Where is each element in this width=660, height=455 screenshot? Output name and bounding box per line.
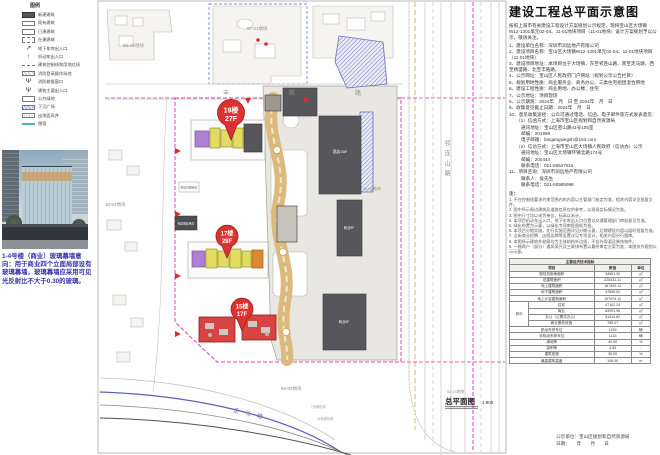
legend-item: Ψ建筑主要出入口 xyxy=(22,88,96,94)
sunken-plaza-swatch xyxy=(22,105,35,111)
legend-item: 既有建筑 xyxy=(22,20,96,26)
legend-label: 既有建筑 xyxy=(38,20,55,26)
red-line-swatch xyxy=(22,65,35,66)
note-line: 8. 本图所示建筑外轮廓均为主体结构外边线，不含外保温及装饰构件。 xyxy=(509,239,657,244)
legend-label: 围墙 xyxy=(38,121,46,127)
panel-line: 2、建设项目名称：宝山区大场镇W12-1301单元02-04、11-01地块项目… xyxy=(509,49,657,61)
panel-line: 通讯地址：宝山区密山路41号105室 xyxy=(509,125,657,131)
legend-item: 出地面风井 xyxy=(22,113,96,119)
parcel-label-6203: 62-03地块 xyxy=(281,385,302,392)
public-green-swatch xyxy=(22,96,35,102)
legend-title: 图例 xyxy=(30,2,96,9)
main-entrance-icon: Ψ xyxy=(22,88,35,94)
vent-shaft-swatch xyxy=(22,113,35,119)
parcel-label-1102: 11-02地块 xyxy=(363,185,381,191)
panel-line: 11、项目咨询：深圳市润远地产有限公司 xyxy=(509,169,657,175)
page-title: 建设工程总平面示意图 xyxy=(509,3,657,20)
facade-caption: 1-4号楼（商业）玻璃幕墙意向：用于商业四个立面局部设有玻璃幕墙，玻璃幕墙应采用… xyxy=(2,253,92,286)
legend-item: ↑机动车出入口 xyxy=(22,54,96,60)
legend-label: 消防登高操作场地 xyxy=(38,71,72,77)
rendering-people xyxy=(28,235,68,239)
legend-item: Ψ消防救援窗口 xyxy=(22,79,96,85)
panel-line: 9、收集意见截止日期：2024年 月 日 xyxy=(509,105,657,111)
table-row: 最高建筑高度106.00m xyxy=(510,358,651,364)
mall-tower-label: 商业9F xyxy=(344,225,355,230)
panel-line: 联系人：侯先生 xyxy=(509,176,657,182)
plan-publicity-sheet: 图例 新建建筑既有建筑已建建筑在建建筑↗地下车库出入口↑机动车出入口建筑控制线和… xyxy=(0,0,660,455)
property-office-label: 物业管理用房 xyxy=(181,186,198,190)
legend-label: 新建建筑 xyxy=(38,12,55,18)
panel-items: 1、建设单位名称：深圳市润远地产有限公司2、建设项目名称：宝山区大场镇W12-1… xyxy=(509,43,657,188)
built-building-swatch xyxy=(22,29,35,35)
panel-line: 10、意见收集途径：公众可通过电话、信函、电子邮件等方式发表意见： xyxy=(509,112,657,118)
note-line: 7. 沿街商业招牌、店招店牌等设置详见专项设计，相关内容另行报审。 xyxy=(509,233,657,238)
under-construction-swatch xyxy=(22,37,35,43)
road-label-top: 丰皓路 xyxy=(223,89,421,97)
legend-item: 下沉广场 xyxy=(22,104,96,110)
badge-17-line2: 28F xyxy=(222,239,233,245)
panel-line: 1、建设单位名称：深圳市润远地产有限公司 xyxy=(509,43,657,49)
panel-line: （2）信访方式：上海市宝山区大场镇人民政府（信访办）公示 xyxy=(509,144,657,150)
legend-label: 地下车库出入口 xyxy=(38,46,67,52)
legend-panel: 图例 新建建筑既有建筑已建建筑在建建筑↗地下车库出入口↑机动车出入口建筑控制线和… xyxy=(22,2,96,129)
service-building-label: 社区配套用房 xyxy=(178,222,195,226)
parcel-label-1004: 10-04地块 xyxy=(105,201,126,208)
road-label-right: 祁连山路 xyxy=(443,139,450,180)
panel-line: （1）信函方式：上海市宝山区规划和自然资源局 xyxy=(509,118,657,124)
note-line: 1. 不在控制线要求约束范围内的内容以主管部门核定为准，相关内容详见批复文件。 xyxy=(509,197,657,207)
legend-label: 建筑控制线和用地红线 xyxy=(38,62,80,68)
metrics-table: 主要经济技术指标项目数值单位规划总用地面积34561.30㎡总建筑面积22543… xyxy=(509,258,651,364)
footer-block: 公示单位：宝山区规划和自然资源局 日期： 年 月 日 xyxy=(556,434,660,447)
legend-item: ↗地下车库出入口 xyxy=(22,46,96,52)
plan-sub-label: 02-03地块 xyxy=(447,389,465,394)
panel-line: 3、建设项目地址：本项目位于大场镇，东至祁连山路、南至走马塘、西至杨盛路、北至丰… xyxy=(509,61,657,73)
legend-item: 公共绿地 xyxy=(22,96,96,102)
site-plan-svg: 酒店30F 商业9F 商业3F xyxy=(95,0,509,455)
fire-operation-area-swatch xyxy=(22,71,35,77)
badge-19-line1: 19楼 xyxy=(224,106,239,115)
panel-line: 5、规划用地性质：商业服务业、商务办公、三类住宅组团混合用地 xyxy=(509,80,657,86)
building-rendering-image xyxy=(2,150,88,249)
table-cell: 最高建筑高度 xyxy=(510,358,595,364)
legend-label: 在建建筑 xyxy=(38,37,55,43)
plan-scale: 1:800 xyxy=(482,400,494,405)
hotel-tower-label: 酒店30F xyxy=(333,148,348,154)
badge-19-line2: 27F xyxy=(225,116,238,123)
note-line: 9. 一梯两户（部分）通风采光及三联排布置以最终审定方案为准，本图仅作规划公示示… xyxy=(509,244,657,254)
legend-items: 新建建筑既有建筑已建建筑在建建筑↗地下车库出入口↑机动车出入口建筑控制线和用地红… xyxy=(22,12,96,127)
panel-line: 7、公示地址：项目现场 xyxy=(509,93,657,99)
site-plan-area: 酒店30F 商业9F 商业3F xyxy=(95,0,509,455)
badge-17-line1: 17楼 xyxy=(221,230,234,238)
badge-15-line2: 17F xyxy=(237,312,248,318)
vehicle-entrance-icon: ↑ xyxy=(22,54,35,60)
rendering-street xyxy=(2,240,88,249)
legend-item: 建筑控制线和用地红线 xyxy=(22,62,96,68)
plan-title: 总平面图 xyxy=(445,396,475,406)
legend-label: 机动车出入口 xyxy=(38,54,63,60)
panel-line: 通讯地址：宝山区大场镇环镇北路174号 xyxy=(509,150,657,156)
mall2-tower-label: 商业3F xyxy=(339,319,350,324)
legend-item: 围墙 xyxy=(22,121,96,127)
legend-label: 建筑主要出入口 xyxy=(38,88,67,94)
parcel-label-0701: 07-01地块 xyxy=(247,25,268,32)
rendering-warm-band xyxy=(22,172,72,181)
green-belt-label-2: 15米绿化带 xyxy=(317,416,334,421)
legend-label: 出地面风井 xyxy=(38,113,59,119)
panel-line: 邮编：201999 xyxy=(509,131,657,137)
parcel-label-b606: B6-06地块 xyxy=(123,42,145,49)
panel-line: 联系电话：021-56527816 xyxy=(509,163,657,169)
panel-line: 联系电话：021-55985998 xyxy=(509,182,657,188)
panel-line: 电子邮箱：fangangxiegsh@163.com xyxy=(509,137,657,143)
existing-building-swatch xyxy=(22,21,35,27)
panel-line: 邮编：200444 xyxy=(509,157,657,163)
table-cell: 106.00 xyxy=(594,358,631,364)
legend-item: 消防登高操作场地 xyxy=(22,71,96,77)
green-belt-label-1: 7米绿化带 xyxy=(311,404,326,409)
panel-line: 6、建设工程性质：商业用地、办公楼、住宅 xyxy=(509,86,657,92)
badge-15-line1: 15楼 xyxy=(236,303,249,311)
legend-label: 已建建筑 xyxy=(38,29,55,35)
table-cell: 其中 xyxy=(510,302,529,327)
legend-label: 下沉广场 xyxy=(38,104,55,110)
garage-entrance-icon: ↗ xyxy=(22,46,35,52)
date-line: 日期： 年 月 日 xyxy=(556,441,660,448)
panel-line: 4、公示网址：宝山区人民政府门户网站（规划公示公告栏目） xyxy=(509,73,657,79)
fence-line-swatch xyxy=(22,123,35,125)
publicity-text-panel: 建设工程总平面示意图 按照上海市有关建设工程设计方案规划公示规定，现将宝山区大场… xyxy=(509,3,657,364)
legend-item: 新建建筑 xyxy=(22,12,96,18)
rendering-left-tower xyxy=(2,150,19,222)
legend-label: 消防救援窗口 xyxy=(38,79,63,85)
intro-paragraph: 按照上海市有关建设工程设计方案规划公示规定，现将宝山区大场镇W12-1301单元… xyxy=(509,23,657,41)
panel-notes: 1. 不在控制线要求约束范围内的内容以主管部门核定为准，相关内容详见批复文件。2… xyxy=(509,197,657,254)
legend-item: 已建建筑 xyxy=(22,29,96,35)
publisher-line: 公示单位：宝山区规划和自然资源局 xyxy=(556,434,660,441)
new-building-swatch xyxy=(22,12,35,18)
table-cell: m xyxy=(631,358,650,364)
fire-rescue-window-icon: Ψ xyxy=(22,79,35,85)
panel-line: 8、公示期限：2024年 月 日 至 2024年 月 日 xyxy=(509,99,657,105)
legend-label: 公共绿地 xyxy=(38,96,55,102)
legend-item: 在建建筑 xyxy=(22,37,96,43)
